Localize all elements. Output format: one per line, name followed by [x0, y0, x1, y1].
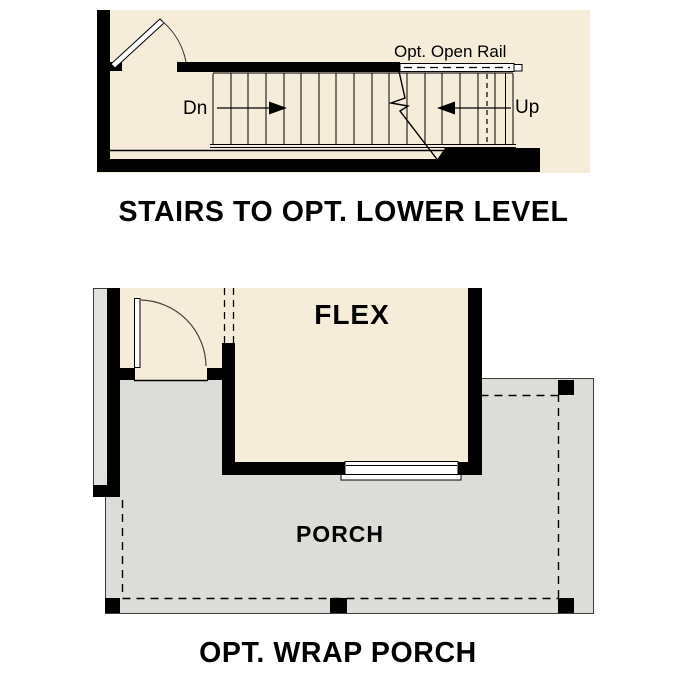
flex-bottom-wall-right: [458, 462, 482, 475]
entry-door-jamb-left: [120, 368, 135, 380]
stair-top-wall: [177, 62, 400, 72]
porch-label: PORCH: [296, 523, 384, 546]
floorplan-sheet: Opt. Open Rail Dn Up STAIRS TO OPT. LOWE…: [0, 0, 687, 687]
entry-door-jamb-right: [207, 368, 222, 380]
house-left-wall-foot: [93, 485, 120, 497]
porch-post-bottom-center: [330, 598, 347, 613]
porch-left-strip: [93, 288, 107, 497]
porch-post-top-right: [558, 380, 574, 395]
open-rail-label: Opt. Open Rail: [394, 43, 506, 60]
stair-left-wall: [97, 10, 110, 172]
porch-fills: [93, 288, 593, 613]
stair-diagram-title: STAIRS TO OPT. LOWER LEVEL: [0, 196, 687, 229]
flex-room-label: FLEX: [314, 301, 390, 329]
flex-bottom-wall-left: [222, 462, 345, 475]
porch-floor-right: [482, 378, 593, 613]
flex-window-symbol: [341, 462, 461, 481]
flex-right-wall: [468, 288, 482, 475]
porch-plan-title: OPT. WRAP PORCH: [199, 637, 477, 670]
porch-post-bottom-right: [558, 598, 574, 613]
stair-up-label: Up: [515, 98, 539, 117]
flex-left-wall: [222, 343, 235, 475]
stair-landing-wall: [429, 148, 540, 172]
house-left-wall: [107, 288, 120, 497]
porch-post-bottom-left: [105, 598, 120, 613]
stair-down-label: Dn: [183, 99, 207, 118]
floorplan-linework: [0, 0, 687, 687]
open-rail-symbol: [400, 64, 522, 72]
